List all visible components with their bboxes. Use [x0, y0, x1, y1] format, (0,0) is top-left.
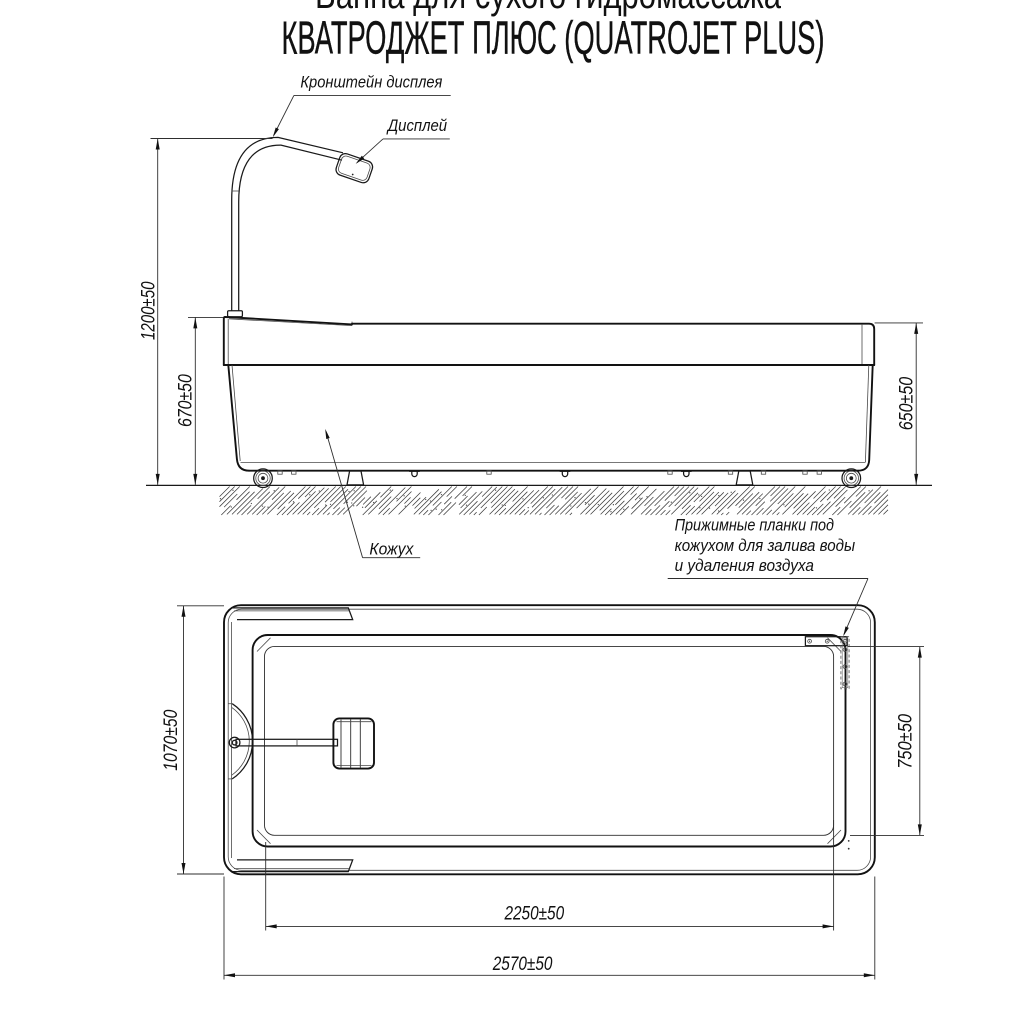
svg-text:2570±50: 2570±50: [492, 953, 553, 975]
svg-text:Прижимные планки под: Прижимные планки под: [675, 517, 834, 535]
svg-text:Кожух: Кожух: [369, 540, 413, 559]
svg-text:кожухом для залива воды: кожухом для залива воды: [675, 537, 856, 555]
svg-text:650±50: 650±50: [896, 377, 918, 431]
svg-text:и удаления воздуха: и удаления воздуха: [675, 557, 814, 575]
svg-text:670±50: 670±50: [174, 374, 196, 427]
svg-text:КВАТРОДЖЕТ ПЛЮС (QUATROJET PLU: КВАТРОДЖЕТ ПЛЮС (QUATROJET PLUS): [282, 12, 825, 64]
svg-text:Дисплей: Дисплей: [386, 116, 448, 135]
svg-text:Кронштейн дисплея: Кронштейн дисплея: [300, 73, 442, 92]
svg-text:2250±50: 2250±50: [504, 903, 565, 925]
svg-text:750±50: 750±50: [895, 714, 917, 769]
svg-text:1070±50: 1070±50: [160, 710, 182, 771]
svg-text:1200±50: 1200±50: [138, 281, 160, 340]
